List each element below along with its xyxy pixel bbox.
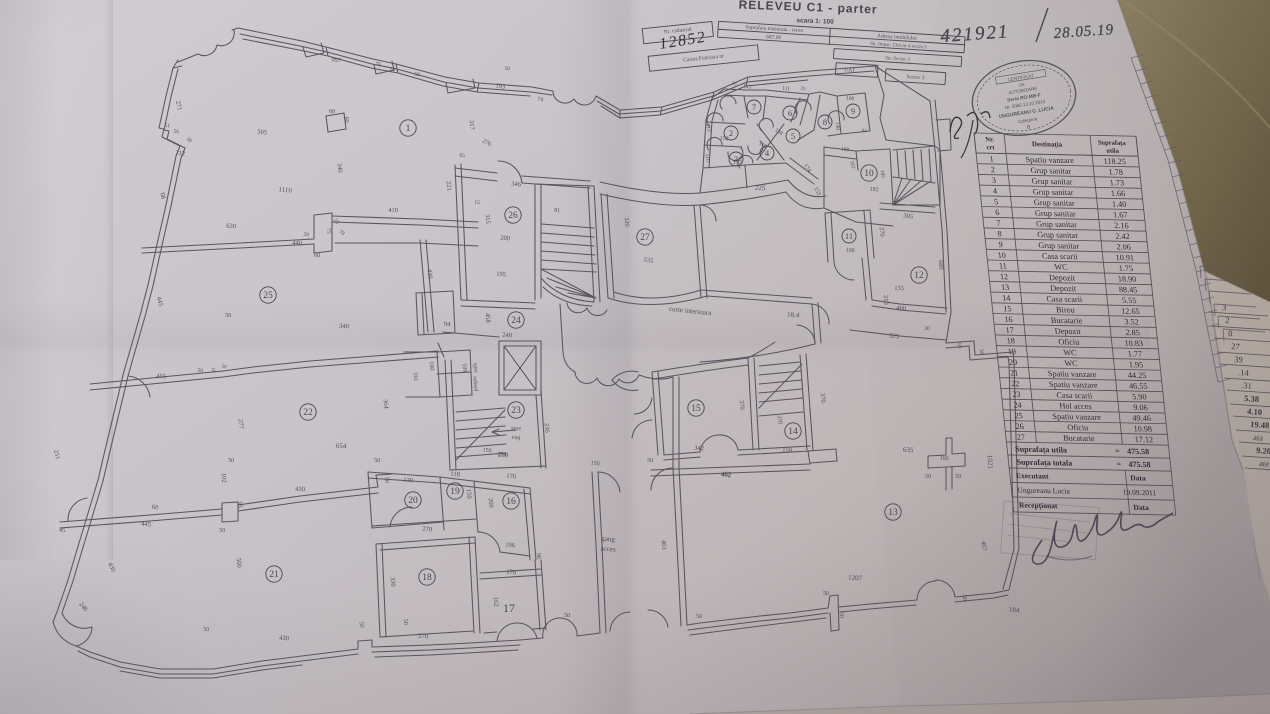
svg-text:108: 108 [461, 363, 468, 372]
svg-text:11: 11 [845, 231, 853, 241]
svg-text:5.55: 5.55 [1122, 296, 1137, 305]
svg-text:305: 305 [903, 212, 914, 220]
svg-text:utila: utila [1106, 148, 1120, 155]
svg-text:21: 21 [1010, 368, 1019, 377]
svg-text:4.10: 4.10 [1247, 406, 1263, 417]
svg-text:185: 185 [879, 170, 886, 179]
svg-text:27: 27 [640, 233, 650, 243]
svg-text:WC: WC [1063, 348, 1078, 357]
svg-text:342: 342 [694, 445, 704, 453]
svg-text:Nr.: Nr. [985, 136, 995, 143]
svg-text:Suprafața totala: Suprafața totala [1016, 458, 1073, 468]
svg-text:22: 22 [1011, 379, 1020, 388]
svg-text:50: 50 [838, 612, 845, 619]
svg-text:10.98: 10.98 [1133, 424, 1152, 433]
svg-text:125: 125 [743, 83, 752, 90]
svg-text:Sector 3: Sector 3 [906, 74, 925, 81]
svg-text:1: 1 [406, 124, 411, 134]
svg-text:18: 18 [1006, 336, 1015, 345]
svg-text:2.06: 2.06 [1116, 242, 1131, 251]
svg-text:Suprafața utila: Suprafața utila [1015, 445, 1068, 455]
svg-text:39: 39 [1234, 354, 1243, 365]
svg-text:525: 525 [889, 333, 899, 341]
svg-text:270: 270 [418, 633, 428, 641]
svg-text:.31: .31 [1241, 380, 1252, 391]
svg-text:150: 150 [782, 447, 792, 455]
svg-text:Bucatarie: Bucatarie [1063, 434, 1096, 444]
svg-text:1.40: 1.40 [1112, 200, 1127, 209]
svg-text:150: 150 [590, 461, 599, 468]
svg-text:630: 630 [226, 223, 236, 231]
svg-text:Grup sanitar: Grup sanitar [1036, 219, 1078, 229]
svg-text:155: 155 [894, 285, 904, 293]
svg-text:475.58: 475.58 [1127, 447, 1150, 456]
svg-text:88.45: 88.45 [1118, 285, 1137, 294]
svg-text:200: 200 [500, 235, 510, 243]
svg-text:210: 210 [882, 295, 890, 305]
svg-text:340: 340 [339, 323, 349, 331]
svg-text:50: 50 [402, 619, 409, 626]
svg-text:2: 2 [1225, 315, 1230, 325]
svg-text:2.16: 2.16 [1114, 221, 1129, 230]
svg-text:370: 370 [819, 393, 827, 403]
svg-text:50: 50 [647, 458, 653, 464]
svg-text:458: 458 [484, 313, 492, 323]
svg-text:23: 23 [511, 406, 521, 416]
svg-text:19.48: 19.48 [1250, 419, 1270, 430]
svg-text:118: 118 [450, 471, 460, 479]
svg-text:1110: 1110 [278, 186, 293, 195]
svg-text:60: 60 [314, 253, 320, 259]
svg-text:14: 14 [1002, 294, 1011, 303]
svg-text:1.95: 1.95 [1128, 360, 1143, 369]
svg-text:1.77: 1.77 [1127, 349, 1142, 358]
svg-text:112: 112 [175, 149, 185, 157]
svg-text:687.00: 687.00 [766, 34, 782, 41]
svg-text:49.46: 49.46 [1132, 414, 1151, 423]
svg-text:29: 29 [303, 232, 310, 239]
svg-text:98: 98 [535, 553, 542, 560]
svg-text:21: 21 [269, 570, 279, 580]
svg-text:Birou: Birou [1056, 305, 1076, 314]
svg-text:Bucatarie: Bucatarie [1050, 316, 1083, 326]
svg-text:60: 60 [329, 109, 336, 116]
svg-text:Grup sanitar: Grup sanitar [1033, 198, 1075, 208]
svg-text:221: 221 [445, 181, 453, 191]
svg-text:1.66: 1.66 [1110, 189, 1125, 198]
svg-text:100: 100 [845, 248, 854, 255]
svg-text:Grup sanitar: Grup sanitar [1037, 230, 1079, 240]
svg-text:0: 0 [1228, 328, 1233, 338]
svg-text:50: 50 [696, 614, 702, 620]
svg-text:.14: .14 [1238, 367, 1250, 378]
svg-text:1.75: 1.75 [1118, 264, 1133, 273]
svg-text:81: 81 [554, 208, 561, 215]
svg-text:111: 111 [782, 86, 791, 93]
svg-text:10: 10 [997, 251, 1006, 260]
svg-text:50: 50 [414, 72, 421, 79]
svg-text:250: 250 [497, 452, 506, 459]
svg-text:22: 22 [303, 408, 313, 418]
svg-text:95: 95 [236, 501, 244, 508]
svg-text:25: 25 [263, 291, 273, 301]
svg-text:162: 162 [492, 597, 500, 607]
svg-text:445: 445 [141, 521, 151, 529]
svg-text:176: 176 [506, 473, 517, 481]
svg-text:158: 158 [719, 136, 728, 143]
svg-text:51: 51 [164, 123, 171, 130]
svg-text:Suprafața: Suprafața [1098, 139, 1127, 147]
svg-text:27: 27 [1231, 341, 1240, 352]
svg-text:18.4: 18.4 [787, 311, 800, 320]
svg-text:16: 16 [1004, 315, 1013, 324]
svg-text:12: 12 [999, 272, 1008, 281]
svg-text:Depozit: Depozit [1049, 273, 1077, 283]
svg-text:997: 997 [331, 56, 342, 64]
svg-text:5.38: 5.38 [1244, 393, 1260, 404]
svg-text:277: 277 [237, 419, 245, 430]
svg-text:248: 248 [502, 332, 512, 340]
svg-text:Spatiu vanzare: Spatiu vanzare [1049, 380, 1099, 390]
svg-text:Ungureanu Lucia: Ungureanu Lucia [1017, 486, 1071, 496]
svg-text:500: 500 [235, 558, 243, 568]
svg-text:Grup sanitar: Grup sanitar [1038, 241, 1080, 251]
svg-text:26: 26 [1015, 422, 1024, 431]
svg-text:Spatiu vanzare: Spatiu vanzare [1052, 412, 1102, 422]
svg-text:17.12: 17.12 [1134, 435, 1153, 444]
svg-text:315: 315 [484, 214, 492, 224]
svg-text:1.73: 1.73 [1109, 178, 1124, 187]
svg-text:195: 195 [496, 271, 506, 279]
svg-text:9.06: 9.06 [1133, 403, 1148, 412]
svg-text:440: 440 [292, 240, 302, 248]
svg-text:13: 13 [888, 508, 898, 518]
svg-text:50: 50 [197, 368, 203, 375]
svg-text:Hol acces: Hol acces [1059, 401, 1092, 411]
svg-text:WC: WC [1054, 263, 1069, 272]
svg-text:Oficiu: Oficiu [1058, 337, 1080, 346]
svg-text:11: 11 [999, 261, 1008, 270]
svg-text:9: 9 [851, 106, 855, 116]
svg-text:1.67: 1.67 [1113, 210, 1128, 219]
svg-text:17: 17 [1005, 326, 1014, 335]
svg-text:1207: 1207 [848, 574, 863, 583]
svg-text:184: 184 [1009, 606, 1021, 615]
svg-text:15: 15 [691, 404, 701, 414]
svg-text:WC: WC [1064, 359, 1079, 368]
svg-text:etaj: etaj [512, 435, 521, 442]
svg-text:118.25: 118.25 [1103, 157, 1126, 166]
svg-text:Depozit: Depozit [1054, 327, 1082, 337]
svg-text:460: 460 [896, 305, 906, 313]
svg-text:50: 50 [504, 66, 511, 73]
svg-text:100: 100 [939, 456, 948, 463]
svg-text:330: 330 [389, 577, 397, 587]
svg-text:50: 50 [358, 621, 365, 628]
svg-text:Data: Data [1130, 473, 1147, 482]
svg-text:Oficiu: Oficiu [1067, 423, 1089, 432]
svg-text:180: 180 [841, 147, 850, 154]
svg-text:50: 50 [219, 528, 226, 535]
svg-text:45: 45 [59, 528, 66, 535]
svg-text:6: 6 [788, 108, 792, 118]
svg-text:192: 192 [869, 187, 878, 194]
svg-text:DE: DE [1019, 82, 1026, 88]
svg-text:340: 340 [336, 163, 344, 173]
svg-text:475.58: 475.58 [1128, 460, 1151, 469]
svg-text:270: 270 [878, 227, 886, 237]
svg-text:130: 130 [403, 477, 413, 485]
svg-text:150: 150 [482, 448, 491, 455]
svg-text:Casa scarii: Casa scarii [1041, 252, 1078, 262]
svg-text:157: 157 [732, 160, 741, 167]
svg-text:Spatiu vanzare: Spatiu vanzare [1025, 155, 1075, 165]
svg-text:50: 50 [203, 627, 210, 634]
svg-text:Grup sanitar: Grup sanitar [1034, 209, 1076, 219]
svg-text:7: 7 [752, 102, 756, 112]
svg-text:56: 56 [173, 129, 180, 136]
svg-text:15: 15 [474, 200, 480, 206]
svg-text:463: 463 [660, 540, 668, 550]
svg-text:2.85: 2.85 [1125, 328, 1140, 337]
svg-text:467: 467 [980, 541, 988, 552]
svg-text:Depozit: Depozit [1050, 284, 1078, 294]
svg-text:spre: spre [472, 363, 479, 374]
svg-text:Casa scarii: Casa scarii [1056, 391, 1093, 401]
svg-text:Grup sanitar: Grup sanitar [1032, 187, 1074, 197]
svg-text:20: 20 [1008, 358, 1017, 367]
svg-text:320: 320 [623, 217, 631, 227]
svg-text:30: 30 [924, 326, 930, 332]
svg-text:50: 50 [961, 595, 968, 602]
svg-text:50: 50 [225, 313, 231, 319]
svg-text:9.20: 9.20 [1256, 445, 1270, 456]
svg-text:50: 50 [228, 458, 234, 464]
svg-text:gang: gang [601, 535, 616, 544]
svg-text:1.78: 1.78 [1108, 168, 1123, 177]
svg-text:19: 19 [1007, 347, 1016, 356]
svg-text:50: 50 [823, 591, 829, 597]
svg-text:5: 5 [791, 131, 795, 141]
svg-text:8: 8 [823, 117, 827, 127]
svg-text:Grup sanitar: Grup sanitar [1031, 177, 1073, 187]
svg-text:2.42: 2.42 [1115, 232, 1130, 241]
svg-text:65: 65 [459, 153, 465, 159]
svg-text:23: 23 [1012, 390, 1021, 399]
svg-text:19.09.2011: 19.09.2011 [1122, 488, 1157, 498]
svg-text:200: 200 [487, 498, 495, 508]
svg-text:635: 635 [903, 446, 915, 455]
svg-text:Casa scarii: Casa scarii [1046, 294, 1083, 304]
svg-text:17: 17 [503, 601, 515, 615]
svg-text:370: 370 [738, 400, 746, 410]
svg-text:505: 505 [257, 129, 267, 137]
svg-text:50: 50 [955, 474, 961, 480]
svg-text:25: 25 [1014, 411, 1023, 420]
svg-text:455: 455 [156, 373, 166, 381]
svg-text:Grup sanitar: Grup sanitar [1030, 166, 1072, 176]
svg-text:50: 50 [374, 458, 381, 465]
svg-text:317: 317 [468, 120, 476, 131]
svg-text:12: 12 [914, 271, 924, 281]
svg-text:Data: Data [1133, 503, 1150, 512]
svg-text:50: 50 [925, 474, 931, 480]
svg-text:26: 26 [508, 211, 518, 221]
svg-text:3: 3 [1222, 302, 1227, 312]
svg-text:346: 346 [511, 181, 522, 189]
svg-text:140: 140 [834, 122, 841, 131]
svg-text:24: 24 [1013, 401, 1022, 410]
svg-text:acces: acces [600, 544, 616, 553]
svg-text:1021: 1021 [985, 455, 994, 470]
svg-text:ate: ate [1259, 458, 1270, 469]
svg-text:74: 74 [537, 97, 544, 104]
svg-text:ata: ata [1253, 432, 1264, 443]
svg-text:2: 2 [729, 128, 733, 138]
svg-text:196: 196 [505, 542, 516, 550]
svg-text:430: 430 [295, 486, 305, 494]
svg-text:680: 680 [937, 260, 945, 270]
svg-text:50: 50 [564, 613, 570, 619]
svg-text:150: 150 [465, 489, 473, 499]
svg-text:60: 60 [152, 504, 159, 512]
svg-text:UAT: UAT [844, 67, 856, 74]
svg-text:10.91: 10.91 [1115, 253, 1134, 262]
svg-text:12.65: 12.65 [1121, 307, 1140, 316]
svg-text:430: 430 [279, 635, 289, 643]
svg-text:430: 430 [426, 269, 434, 279]
svg-text:Destinația: Destinația [1032, 140, 1064, 149]
svg-text:654: 654 [336, 442, 347, 451]
svg-text:Executant: Executant [1015, 471, 1049, 481]
svg-text:16: 16 [506, 497, 516, 507]
svg-text:27: 27 [1016, 433, 1025, 442]
svg-text:176: 176 [506, 569, 517, 577]
svg-text:3.52: 3.52 [1124, 317, 1139, 326]
svg-text:24: 24 [511, 316, 521, 326]
svg-text:Spatiu vanzare: Spatiu vanzare [1047, 369, 1097, 379]
svg-text:270: 270 [422, 526, 432, 534]
svg-text:18: 18 [422, 573, 432, 583]
svg-text:236: 236 [543, 423, 551, 434]
svg-text:20: 20 [408, 496, 418, 506]
svg-text:492: 492 [721, 471, 731, 479]
svg-text:19: 19 [450, 487, 460, 497]
svg-text:10: 10 [864, 169, 874, 179]
svg-text:14: 14 [788, 427, 798, 437]
svg-text:13: 13 [1001, 283, 1010, 292]
svg-text:18.90: 18.90 [1117, 274, 1136, 283]
svg-text:46.55: 46.55 [1129, 381, 1148, 390]
svg-text:364: 364 [382, 399, 390, 410]
svg-text:100: 100 [846, 96, 855, 103]
svg-text:44.25: 44.25 [1127, 371, 1146, 380]
svg-text:160: 160 [428, 361, 435, 370]
svg-text:225: 225 [755, 184, 767, 193]
svg-text:410: 410 [388, 207, 398, 215]
svg-text:5.90: 5.90 [1132, 392, 1147, 401]
svg-text:Recepționat: Recepționat [1019, 501, 1059, 511]
svg-text:spre: spre [511, 426, 522, 433]
svg-text:102: 102 [220, 473, 228, 483]
svg-text:60: 60 [343, 116, 350, 123]
svg-text:75: 75 [325, 228, 332, 235]
svg-text:10.83: 10.83 [1124, 339, 1143, 348]
svg-text:50: 50 [383, 477, 390, 484]
svg-text:161: 161 [412, 372, 419, 381]
svg-text:15: 15 [1003, 304, 1012, 313]
